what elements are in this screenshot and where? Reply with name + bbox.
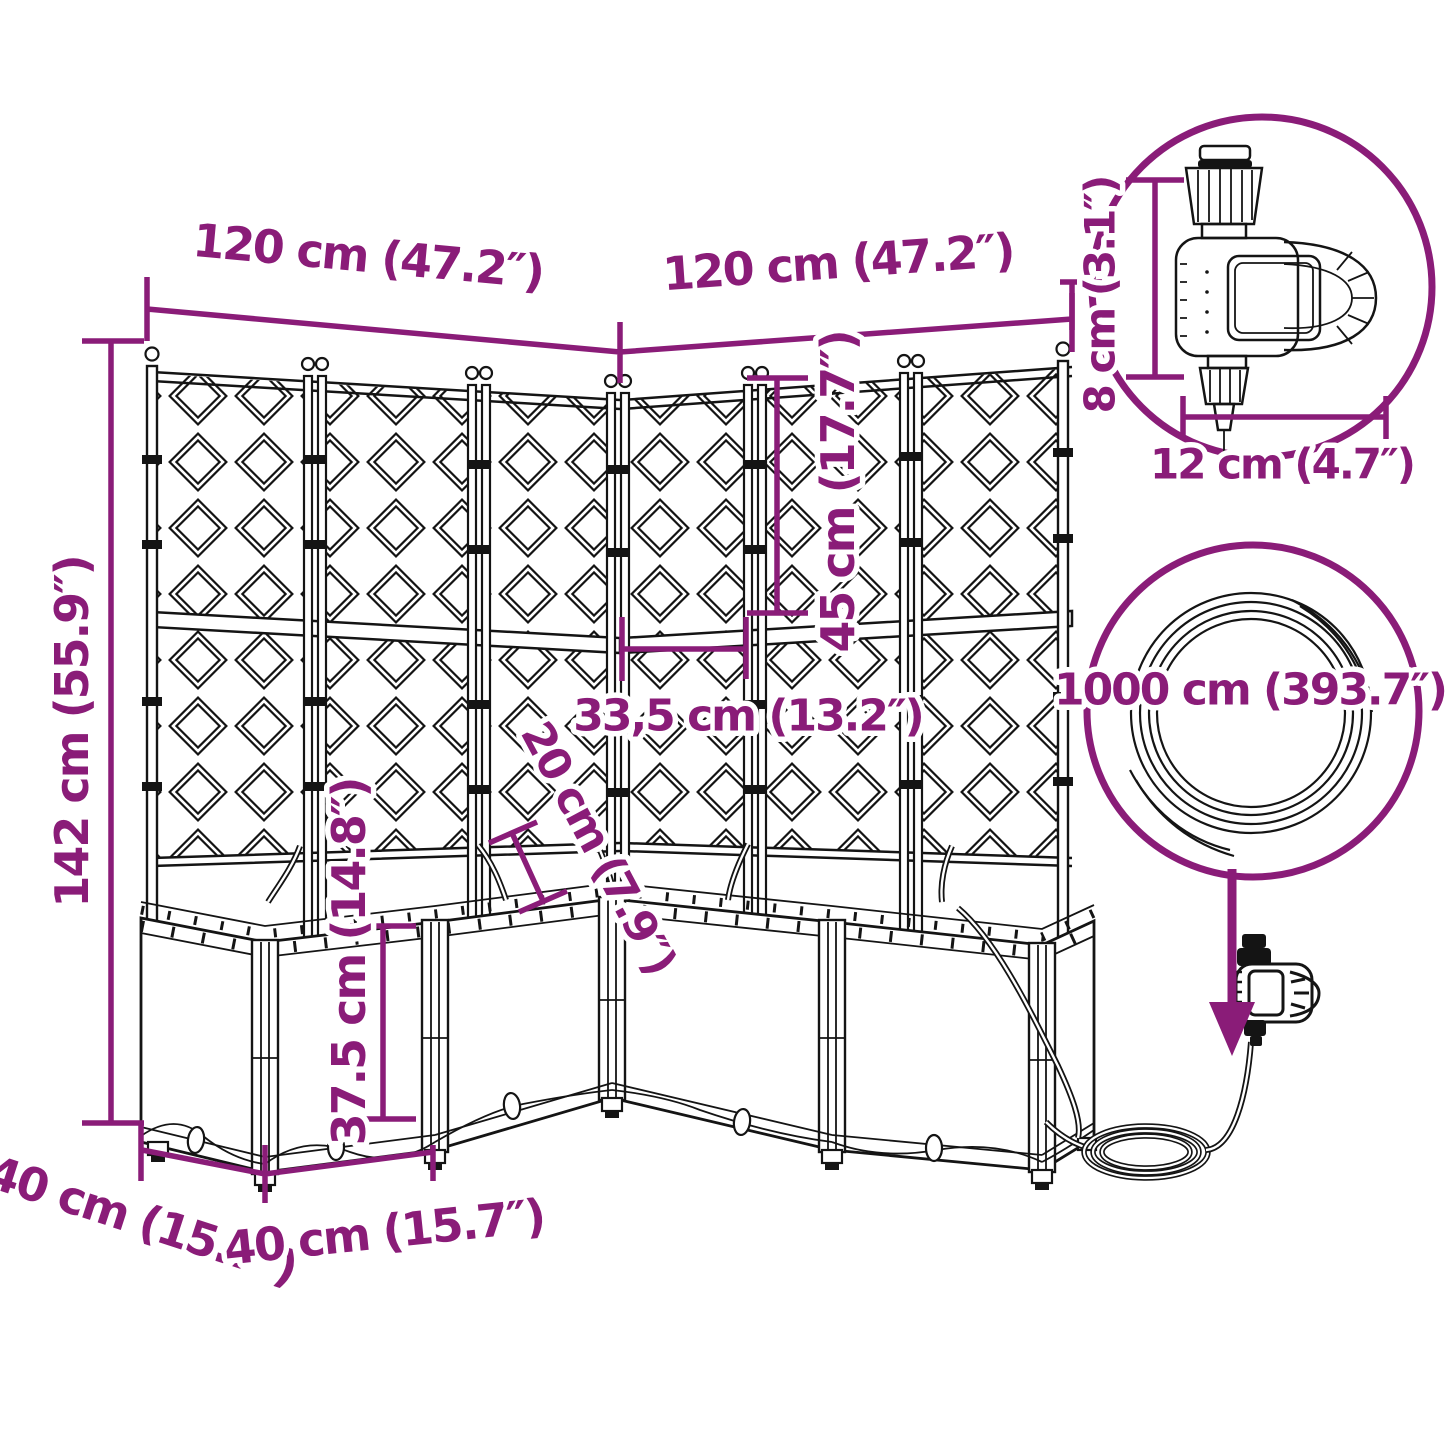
hose-ground-coil — [1084, 1042, 1251, 1178]
label-width-right: 120 cm (47.2″) — [661, 223, 1015, 301]
label-inner-spacing: 33,5 cm (13.2″) — [573, 691, 923, 742]
product-dimension-diagram: 120 cm (47.2″) 120 cm (47.2″) 142 cm (55… — [0, 0, 1445, 1445]
label-width-left: 120 cm (47.2″) — [191, 213, 546, 299]
timer-drawing — [1176, 146, 1376, 454]
planter-box-front — [832, 922, 1042, 1170]
label-hose-length: 1000 cm (393.7″) — [1054, 665, 1445, 716]
label-total-height: 142 cm (55.9″) — [45, 556, 99, 907]
water-timer-small — [1236, 934, 1319, 1046]
label-front-width: 40 cm (15.7″) — [221, 1188, 546, 1275]
dim-width-left — [147, 277, 620, 383]
planter-box-front — [435, 899, 612, 1150]
label-planter-height: 37.5 cm (14.8″) — [322, 779, 376, 1146]
label-trellis-section: 45 cm (17.7″) — [811, 331, 865, 652]
trellis-panel — [629, 392, 748, 847]
hose-coil-drawing — [1130, 593, 1372, 856]
label-timer-height: 8 cm (3.1″) — [1076, 177, 1125, 414]
diagram-canvas: 120 cm (47.2″) 120 cm (47.2″) 142 cm (55… — [0, 0, 1445, 1445]
label-timer-width: 12 cm (4.7″) — [1150, 440, 1414, 489]
